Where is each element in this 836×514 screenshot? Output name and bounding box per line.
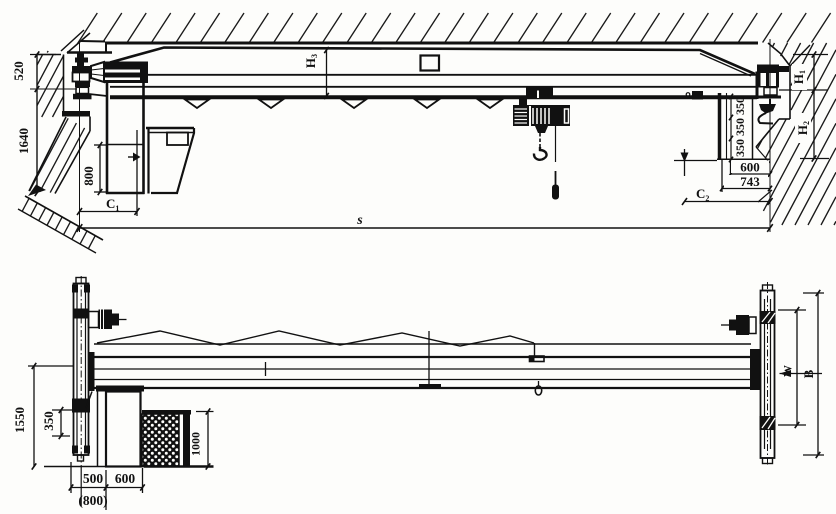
svg-text:1550: 1550 bbox=[12, 407, 27, 433]
svg-text:500: 500 bbox=[83, 471, 104, 486]
svg-text:520: 520 bbox=[11, 61, 26, 81]
svg-text:350: 350 bbox=[733, 97, 747, 115]
svg-text:1000: 1000 bbox=[188, 432, 202, 456]
svg-text:800: 800 bbox=[81, 166, 96, 186]
svg-text:350: 350 bbox=[41, 411, 56, 431]
svg-text:W: W bbox=[780, 365, 794, 377]
svg-text:600: 600 bbox=[115, 471, 136, 486]
svg-text:600: 600 bbox=[740, 160, 760, 175]
svg-text:743: 743 bbox=[740, 174, 760, 189]
svg-text:1640: 1640 bbox=[16, 128, 31, 154]
svg-text:350: 350 bbox=[733, 139, 747, 157]
svg-text:B: B bbox=[801, 369, 816, 378]
svg-text:s: s bbox=[356, 213, 363, 228]
svg-text:(800): (800) bbox=[78, 493, 107, 508]
svg-text:350: 350 bbox=[733, 118, 747, 136]
